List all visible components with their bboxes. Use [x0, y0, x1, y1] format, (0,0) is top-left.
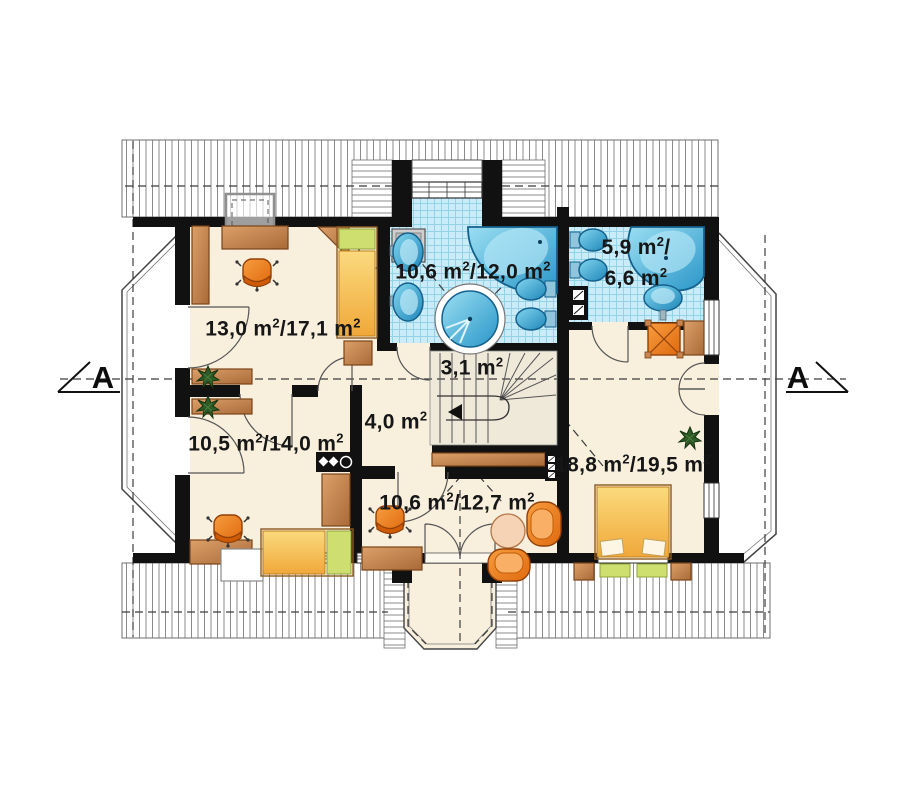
- desk: [222, 226, 288, 249]
- section-marker-a-right: A: [787, 360, 809, 396]
- bed-single: [261, 529, 353, 576]
- armchair-icon: [488, 549, 530, 581]
- dresser: [684, 321, 704, 355]
- east-window-upper: [704, 300, 719, 355]
- dormer-cheek-right: [502, 160, 545, 217]
- nightstand: [344, 341, 372, 365]
- dormer-wall-left: [392, 160, 412, 227]
- round-table: [491, 514, 525, 548]
- dormer-cheek-left: [352, 160, 392, 217]
- dormer-wall-right: [482, 160, 502, 227]
- area-label-line1: 5,9 m2/: [602, 229, 671, 260]
- area-label-staircase: 3,1 m2: [441, 350, 504, 381]
- nightstand: [671, 563, 691, 580]
- area-label-line2: 6,6 m2: [602, 260, 671, 291]
- square-table: [645, 320, 683, 358]
- area-label-bathroom-small: 5,9 m2/ 6,6 m2: [602, 229, 671, 291]
- terrace-right: [719, 233, 776, 562]
- wardrobe: [192, 226, 209, 304]
- area-label-room-upper-left: 13,0 m2/17,1 m2: [205, 311, 361, 342]
- area-label-bedroom-right: 18,8 m2/19,5 m2: [555, 447, 711, 478]
- area-label-hall: 4,0 m2: [365, 404, 428, 435]
- area-label-room-lower-middle: 10,6 m2/12,7 m2: [379, 485, 535, 516]
- bidet-icon: [516, 308, 556, 330]
- area-label-room-lower-left: 10,5 m2/14,0 m2: [188, 426, 344, 457]
- desk: [362, 547, 422, 570]
- utility-cabinet: [569, 286, 588, 320]
- wall-shelf: [432, 453, 545, 466]
- section-marker-a-left: A: [92, 360, 114, 396]
- east-window-lower: [704, 483, 719, 518]
- floor-plan-canvas: 13,0 m2/17,1 m2 10,6 m2/12,0 m2 5,9 m2/ …: [0, 0, 900, 800]
- dormer-window: [412, 160, 482, 198]
- shower-icon: [435, 284, 505, 354]
- area-label-bathroom-main: 10,6 m2/12,0 m2: [395, 254, 551, 285]
- drawing-board: [221, 549, 263, 581]
- nightstand: [574, 563, 594, 580]
- floor-plan-drawing: [0, 0, 900, 800]
- dresser: [322, 474, 350, 526]
